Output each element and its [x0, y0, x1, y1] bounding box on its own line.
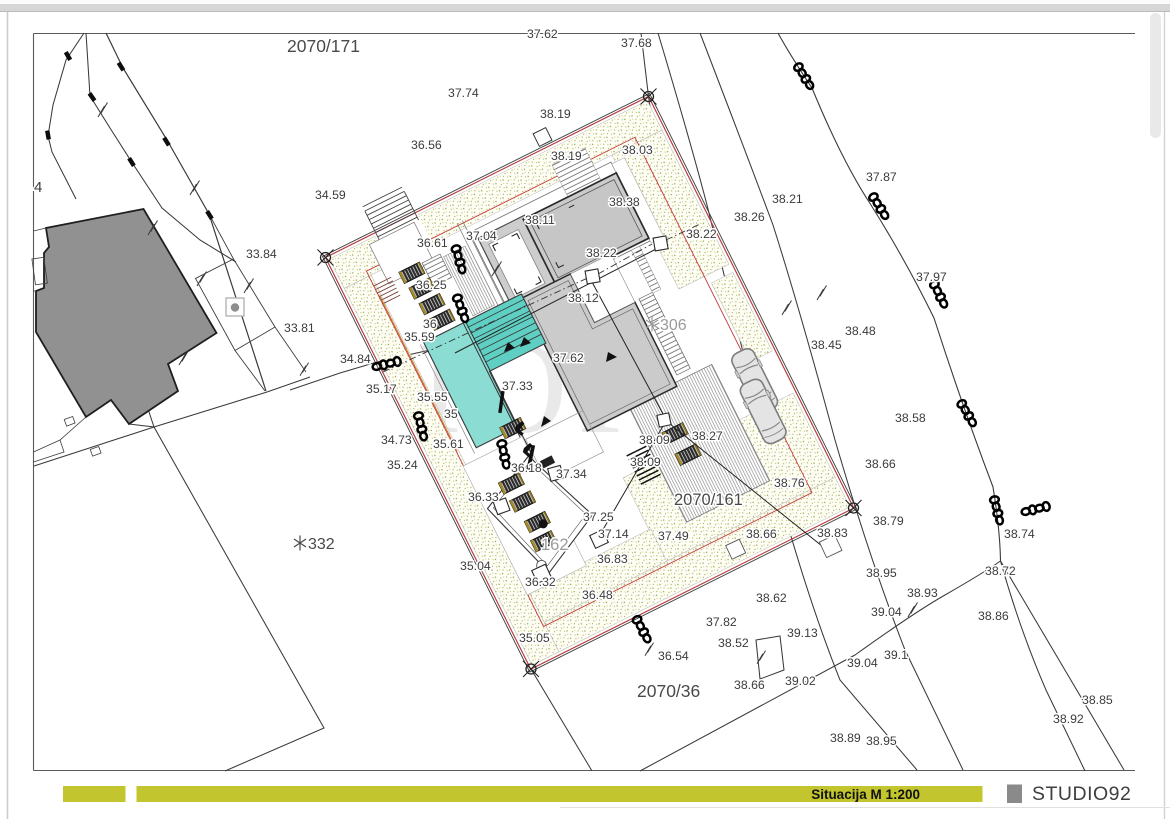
svg-text:38.22: 38.22 [686, 227, 717, 241]
svg-text:39.1: 39.1 [884, 648, 908, 662]
svg-text:38.03: 38.03 [622, 143, 653, 157]
svg-text:37.74: 37.74 [448, 86, 479, 100]
svg-text:38.45: 38.45 [811, 338, 842, 352]
svg-text:39.13: 39.13 [787, 626, 818, 640]
svg-text:38.66: 38.66 [734, 678, 765, 692]
svg-text:38.48: 38.48 [845, 324, 876, 338]
svg-text:37.68: 37.68 [621, 36, 652, 50]
svg-text:37.87: 37.87 [866, 170, 897, 184]
svg-text:2070/161: 2070/161 [674, 491, 743, 509]
svg-text:2070/171: 2070/171 [287, 36, 360, 56]
svg-text:38.95: 38.95 [866, 734, 897, 748]
svg-text:37.97: 37.97 [916, 270, 947, 284]
svg-text:37.25: 37.25 [583, 510, 614, 524]
svg-text:38.86: 38.86 [978, 609, 1009, 623]
svg-text:33.84: 33.84 [246, 247, 277, 261]
svg-text:34.59: 34.59 [315, 188, 346, 202]
svg-text:33.81: 33.81 [284, 321, 315, 335]
svg-text:35: 35 [444, 407, 458, 421]
svg-text:35.24: 35.24 [387, 458, 418, 472]
svg-text:37.62: 37.62 [553, 351, 584, 365]
svg-text:38.83: 38.83 [817, 526, 848, 540]
svg-text:35.59: 35.59 [404, 330, 435, 344]
svg-text:38.38: 38.38 [609, 195, 640, 209]
svg-text:38.79: 38.79 [873, 514, 904, 528]
svg-text:38.11: 38.11 [525, 213, 555, 227]
svg-text:38.85: 38.85 [1082, 693, 1113, 707]
svg-text:38.26: 38.26 [734, 210, 765, 224]
svg-text:36.61: 36.61 [417, 236, 448, 250]
svg-text:38.66: 38.66 [746, 527, 777, 541]
svg-text:38.21: 38.21 [772, 192, 803, 206]
svg-text:37.04: 37.04 [466, 229, 497, 243]
svg-text:38.76: 38.76 [774, 476, 805, 490]
svg-text:38.27: 38.27 [692, 429, 723, 443]
svg-text:38.72: 38.72 [985, 564, 1016, 578]
svg-text:39.02: 39.02 [785, 674, 816, 688]
svg-text:38.95: 38.95 [866, 566, 897, 580]
svg-text:39.04: 39.04 [871, 605, 902, 619]
svg-text:36.18: 36.18 [511, 461, 542, 475]
svg-text:38.92: 38.92 [1053, 712, 1084, 726]
svg-text:38.89: 38.89 [830, 731, 861, 745]
svg-text:35.04: 35.04 [460, 559, 491, 573]
svg-text:38.93: 38.93 [907, 586, 938, 600]
svg-text:306: 306 [660, 317, 687, 334]
svg-text:36: 36 [423, 317, 437, 331]
svg-text:38.52: 38.52 [718, 636, 749, 650]
svg-text:38.66: 38.66 [865, 457, 896, 471]
svg-text:4: 4 [34, 179, 42, 196]
svg-text:38.09: 38.09 [639, 433, 670, 447]
svg-text:38.58: 38.58 [895, 411, 926, 425]
svg-text:332: 332 [308, 536, 335, 553]
svg-text:37.14: 37.14 [598, 527, 629, 541]
svg-text:34.84: 34.84 [340, 352, 371, 366]
svg-text:36.56: 36.56 [411, 138, 442, 152]
svg-text:38.62: 38.62 [756, 591, 787, 605]
svg-text:STUDIO92: STUDIO92 [1032, 783, 1131, 805]
svg-text:35.17: 35.17 [366, 382, 397, 396]
svg-text:35.55: 35.55 [417, 390, 448, 404]
svg-text:36.25: 36.25 [416, 278, 447, 292]
svg-text:36.32: 36.32 [525, 575, 556, 589]
svg-text:35.61: 35.61 [433, 437, 464, 451]
svg-text:36.83: 36.83 [597, 552, 628, 566]
svg-text:34.73: 34.73 [381, 433, 412, 447]
svg-text:38.12: 38.12 [568, 291, 599, 305]
svg-text:37.34: 37.34 [556, 467, 587, 481]
svg-text:38.74: 38.74 [1004, 527, 1035, 541]
svg-text:35.05: 35.05 [519, 631, 550, 645]
svg-text:37.33: 37.33 [502, 379, 533, 393]
svg-text:39.04: 39.04 [847, 656, 878, 670]
svg-text:Situacija M 1:200: Situacija M 1:200 [811, 787, 920, 802]
svg-text:38.22: 38.22 [586, 246, 617, 260]
svg-text:2070/36: 2070/36 [637, 681, 700, 701]
svg-text:38.09: 38.09 [630, 455, 661, 469]
svg-text:37.62: 37.62 [527, 27, 558, 41]
svg-text:37.49: 37.49 [658, 529, 689, 543]
svg-text:38.19: 38.19 [540, 107, 571, 121]
svg-text:37.82: 37.82 [706, 615, 737, 629]
svg-text:36.48: 36.48 [582, 588, 613, 602]
svg-text:162: 162 [541, 536, 569, 554]
svg-text:36.54: 36.54 [658, 649, 689, 663]
svg-text:36.33: 36.33 [468, 490, 499, 504]
svg-text:38.19: 38.19 [551, 149, 582, 163]
